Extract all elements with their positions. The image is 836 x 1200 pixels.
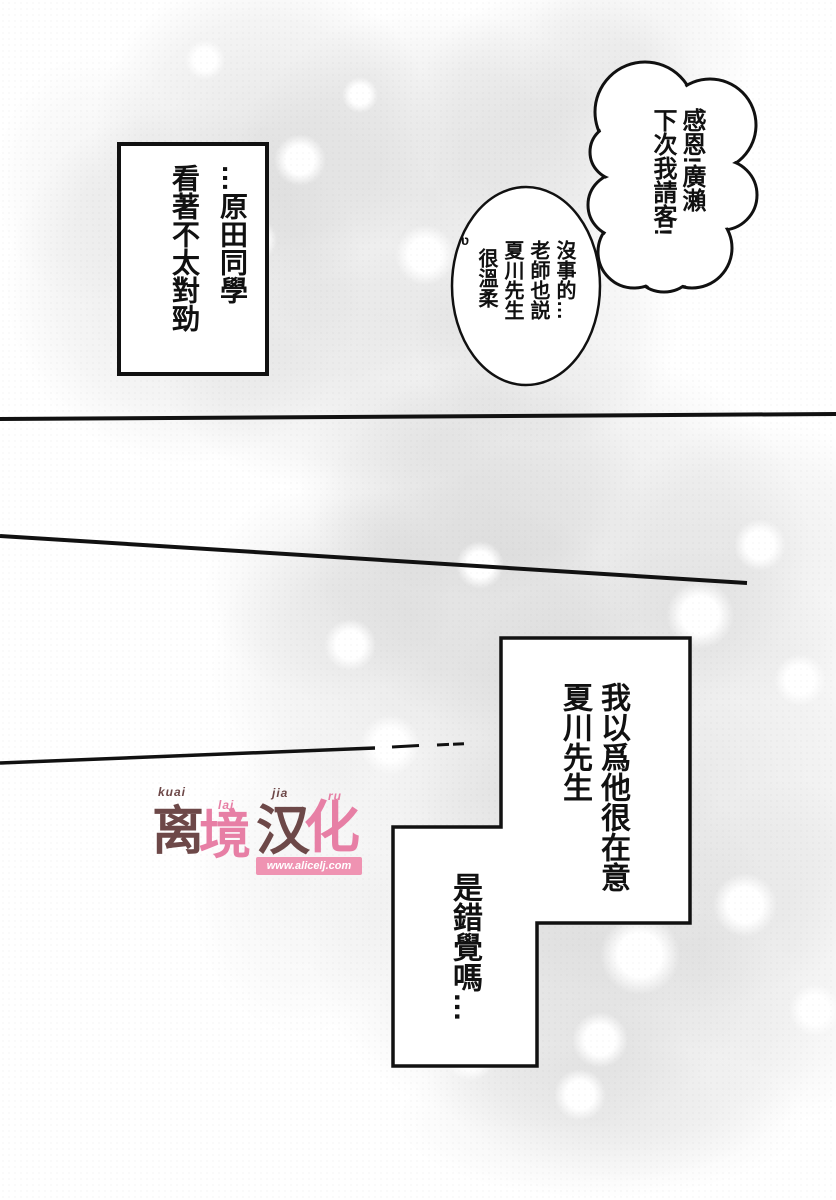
thought-box-shape bbox=[393, 638, 690, 1066]
manga-page: 感恩!廣瀨 下次我請客! ʋ 沒事的… 老師也説 夏川先生 很溫柔 …原田同學 … bbox=[0, 0, 836, 1200]
dash-line-main bbox=[0, 748, 375, 763]
dash-segment-3 bbox=[453, 744, 464, 745]
thought-box-lower-text: 是錯覺嗎… bbox=[447, 872, 481, 1037]
oval-column-1: 沒事的… bbox=[551, 240, 577, 332]
oval-column-2: 老師也説 bbox=[525, 240, 551, 332]
oval-column-4: 很溫柔 bbox=[473, 240, 499, 332]
panel-divider-line bbox=[0, 414, 836, 419]
diagonal-panel-line bbox=[0, 536, 747, 583]
watermark-ruby-jia: jia bbox=[272, 786, 288, 800]
watermark-char-4: 化 bbox=[304, 800, 360, 856]
thought-box-upper-text: 我以爲他很在意 夏川先生 bbox=[555, 682, 631, 900]
dash-segment-1 bbox=[392, 746, 419, 748]
cloud-column-2: 下次我請客! bbox=[648, 108, 677, 258]
cloud-bubble-text: 感恩!廣瀨 下次我請客! bbox=[648, 108, 706, 258]
oval-column-3: 夏川先生 bbox=[499, 240, 525, 332]
watermark-char-2: 境 bbox=[199, 810, 251, 862]
thought-column-1: 我以爲他很在意 bbox=[593, 682, 631, 900]
caption-box-text: …原田同學 看著不太對勁 bbox=[160, 164, 256, 369]
oval-bubble-text: 沒事的… 老師也説 夏川先生 很溫柔 bbox=[473, 240, 577, 332]
watermark-url: www.alicelj.com bbox=[256, 857, 362, 875]
thought-column-2: 夏川先生 bbox=[555, 682, 593, 900]
watermark-char-1: 离 bbox=[152, 806, 204, 858]
dash-segment-2 bbox=[437, 744, 449, 745]
watermark-ruby-kuai: kuai bbox=[158, 785, 186, 799]
caption-column-2: 看著不太對勁 bbox=[160, 164, 208, 369]
caption-column-1: …原田同學 bbox=[208, 164, 256, 369]
watermark-char-3: 汉 bbox=[256, 804, 310, 858]
cloud-column-1: 感恩!廣瀨 bbox=[677, 108, 706, 258]
oval-bubble-mark: ʋ bbox=[461, 232, 469, 248]
